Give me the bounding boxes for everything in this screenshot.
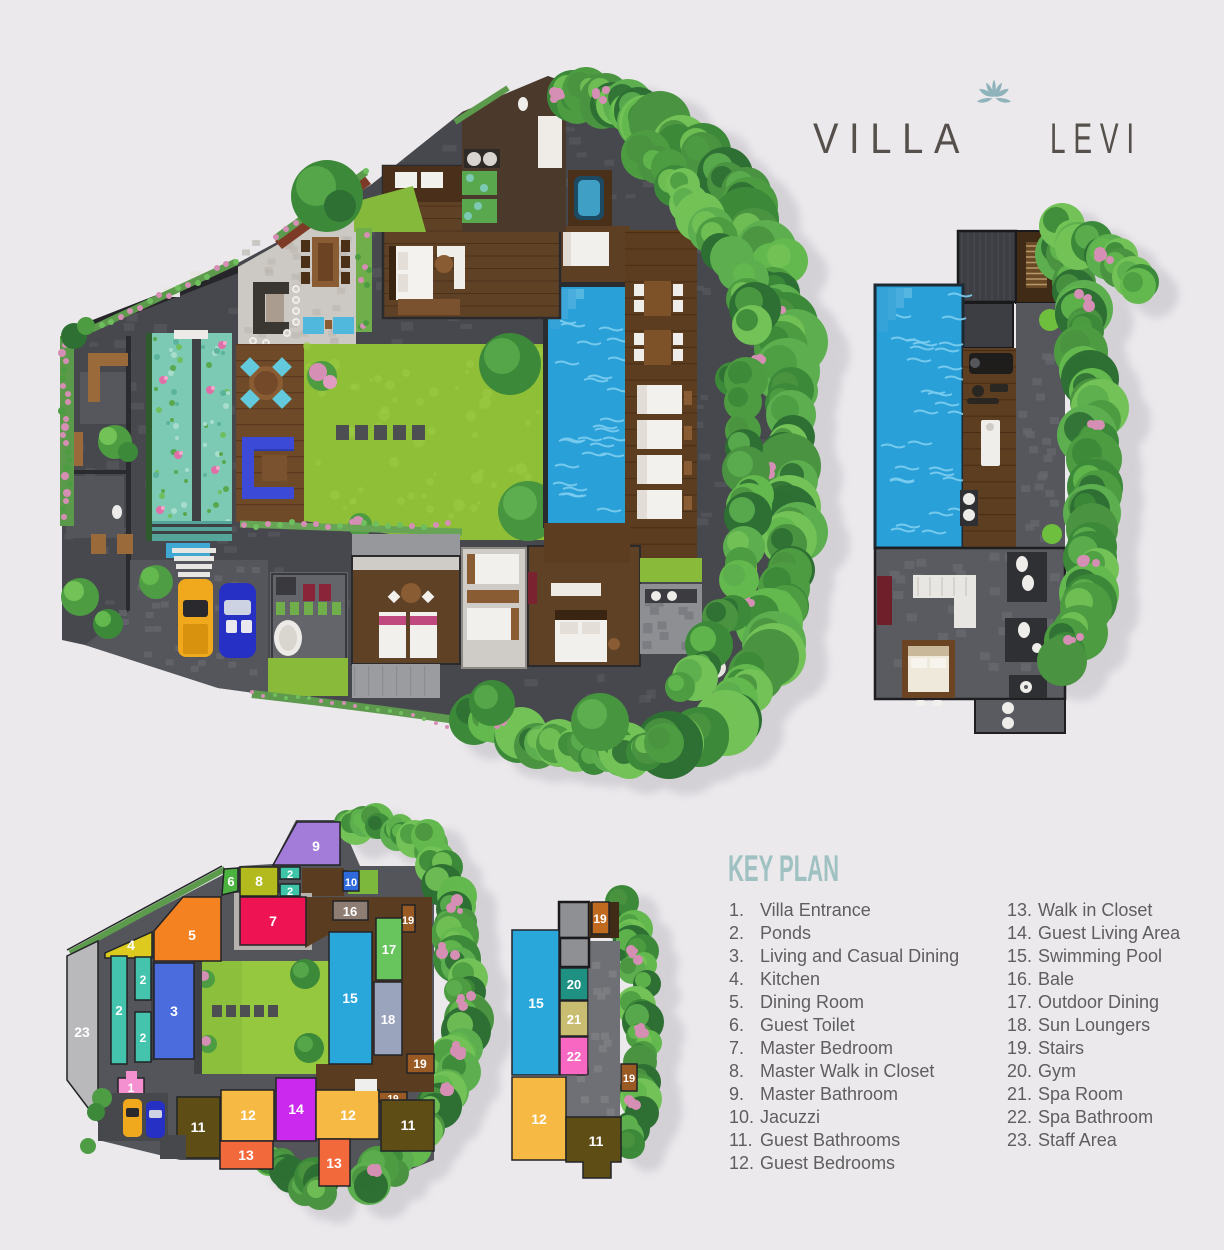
- svg-text:14: 14: [288, 1101, 304, 1117]
- svg-text:14.: 14.: [1007, 923, 1032, 943]
- svg-text:2: 2: [287, 869, 293, 881]
- svg-text:Bale: Bale: [1038, 969, 1074, 989]
- svg-text:10.: 10.: [729, 1107, 754, 1127]
- svg-text:16.: 16.: [1007, 969, 1032, 989]
- svg-text:8.: 8.: [729, 1061, 744, 1081]
- svg-text:1.: 1.: [729, 900, 744, 920]
- svg-text:12.: 12.: [729, 1153, 754, 1173]
- svg-text:Dining Room: Dining Room: [760, 992, 864, 1012]
- svg-text:7: 7: [269, 913, 277, 929]
- svg-text:12: 12: [531, 1111, 547, 1127]
- svg-text:Guest Bathrooms: Guest Bathrooms: [760, 1130, 900, 1150]
- svg-text:6: 6: [227, 874, 234, 889]
- svg-text:19.: 19.: [1007, 1038, 1032, 1058]
- svg-text:20: 20: [567, 977, 581, 992]
- svg-text:KEY PLAN: KEY PLAN: [728, 848, 839, 889]
- svg-text:22: 22: [567, 1049, 581, 1064]
- svg-text:20.: 20.: [1007, 1061, 1032, 1081]
- svg-text:Master Bedroom: Master Bedroom: [760, 1038, 893, 1058]
- svg-text:21: 21: [567, 1012, 581, 1027]
- svg-text:19: 19: [413, 1057, 427, 1071]
- svg-text:16: 16: [343, 904, 357, 919]
- svg-text:Walk in Closet: Walk in Closet: [1038, 900, 1152, 920]
- svg-text:17: 17: [382, 942, 396, 957]
- svg-text:2: 2: [140, 1031, 147, 1045]
- svg-text:22.: 22.: [1007, 1107, 1032, 1127]
- svg-text:23.: 23.: [1007, 1130, 1032, 1150]
- svg-text:1: 1: [128, 1081, 135, 1095]
- svg-text:17.: 17.: [1007, 992, 1032, 1012]
- svg-text:Ponds: Ponds: [760, 923, 811, 943]
- svg-text:15: 15: [342, 990, 358, 1006]
- svg-text:Guest Toilet: Guest Toilet: [760, 1015, 855, 1035]
- svg-text:4: 4: [127, 937, 135, 953]
- svg-text:11: 11: [401, 1117, 416, 1133]
- svg-text:7.: 7.: [729, 1038, 744, 1058]
- svg-text:2: 2: [115, 1003, 122, 1018]
- svg-text:Gym: Gym: [1038, 1061, 1076, 1081]
- svg-text:11.: 11.: [729, 1130, 753, 1150]
- svg-text:4.: 4.: [729, 969, 744, 989]
- svg-text:6.: 6.: [729, 1015, 744, 1035]
- svg-text:13.: 13.: [1007, 900, 1032, 920]
- svg-text:Spa Bathroom: Spa Bathroom: [1038, 1107, 1153, 1127]
- svg-text:Guest Bedrooms: Guest Bedrooms: [760, 1153, 895, 1173]
- svg-text:23: 23: [74, 1024, 90, 1040]
- svg-text:15.: 15.: [1007, 946, 1032, 966]
- svg-text:13: 13: [238, 1147, 254, 1163]
- svg-text:19: 19: [623, 1073, 635, 1085]
- svg-text:Swimming Pool: Swimming Pool: [1038, 946, 1162, 966]
- svg-text:12: 12: [340, 1107, 356, 1123]
- svg-text:Staff Area: Staff Area: [1038, 1130, 1118, 1150]
- svg-text:2: 2: [287, 886, 293, 898]
- svg-text:Outdoor Dining: Outdoor Dining: [1038, 992, 1159, 1012]
- svg-text:Guest Living Area: Guest Living Area: [1038, 923, 1181, 943]
- svg-text:15: 15: [528, 995, 544, 1011]
- svg-text:18.: 18.: [1007, 1015, 1032, 1035]
- svg-text:9.: 9.: [729, 1084, 744, 1104]
- svg-text:Spa Room: Spa Room: [1038, 1084, 1123, 1104]
- svg-text:13: 13: [326, 1155, 342, 1171]
- svg-text:5: 5: [188, 927, 196, 943]
- svg-text:2.: 2.: [729, 923, 744, 943]
- svg-text:3.: 3.: [729, 946, 744, 966]
- svg-text:Master Walk in Closet: Master Walk in Closet: [760, 1061, 934, 1081]
- svg-text:11: 11: [191, 1119, 206, 1135]
- svg-text:12: 12: [240, 1107, 256, 1123]
- svg-text:9: 9: [312, 838, 320, 854]
- svg-text:21.: 21.: [1007, 1084, 1032, 1104]
- svg-text:8: 8: [255, 873, 263, 889]
- svg-text:Kitchen: Kitchen: [760, 969, 820, 989]
- svg-text:5.: 5.: [729, 992, 744, 1012]
- svg-text:Villa Entrance: Villa Entrance: [760, 900, 871, 920]
- svg-text:Sun Loungers: Sun Loungers: [1038, 1015, 1150, 1035]
- svg-text:Jacuzzi: Jacuzzi: [760, 1107, 820, 1127]
- svg-text:Stairs: Stairs: [1038, 1038, 1084, 1058]
- svg-text:3: 3: [170, 1003, 178, 1019]
- svg-text:19: 19: [593, 912, 607, 926]
- svg-text:Living and Casual Dining: Living and Casual Dining: [760, 946, 959, 966]
- svg-text:18: 18: [381, 1012, 395, 1027]
- svg-text:19: 19: [402, 915, 414, 927]
- svg-text:10: 10: [345, 877, 357, 889]
- svg-text:2: 2: [140, 973, 147, 987]
- svg-text:LEVI: LEVI: [1050, 115, 1142, 163]
- svg-text:Master Bathroom: Master Bathroom: [760, 1084, 898, 1104]
- svg-text:VILLA: VILLA: [813, 115, 970, 163]
- svg-text:11: 11: [589, 1133, 604, 1149]
